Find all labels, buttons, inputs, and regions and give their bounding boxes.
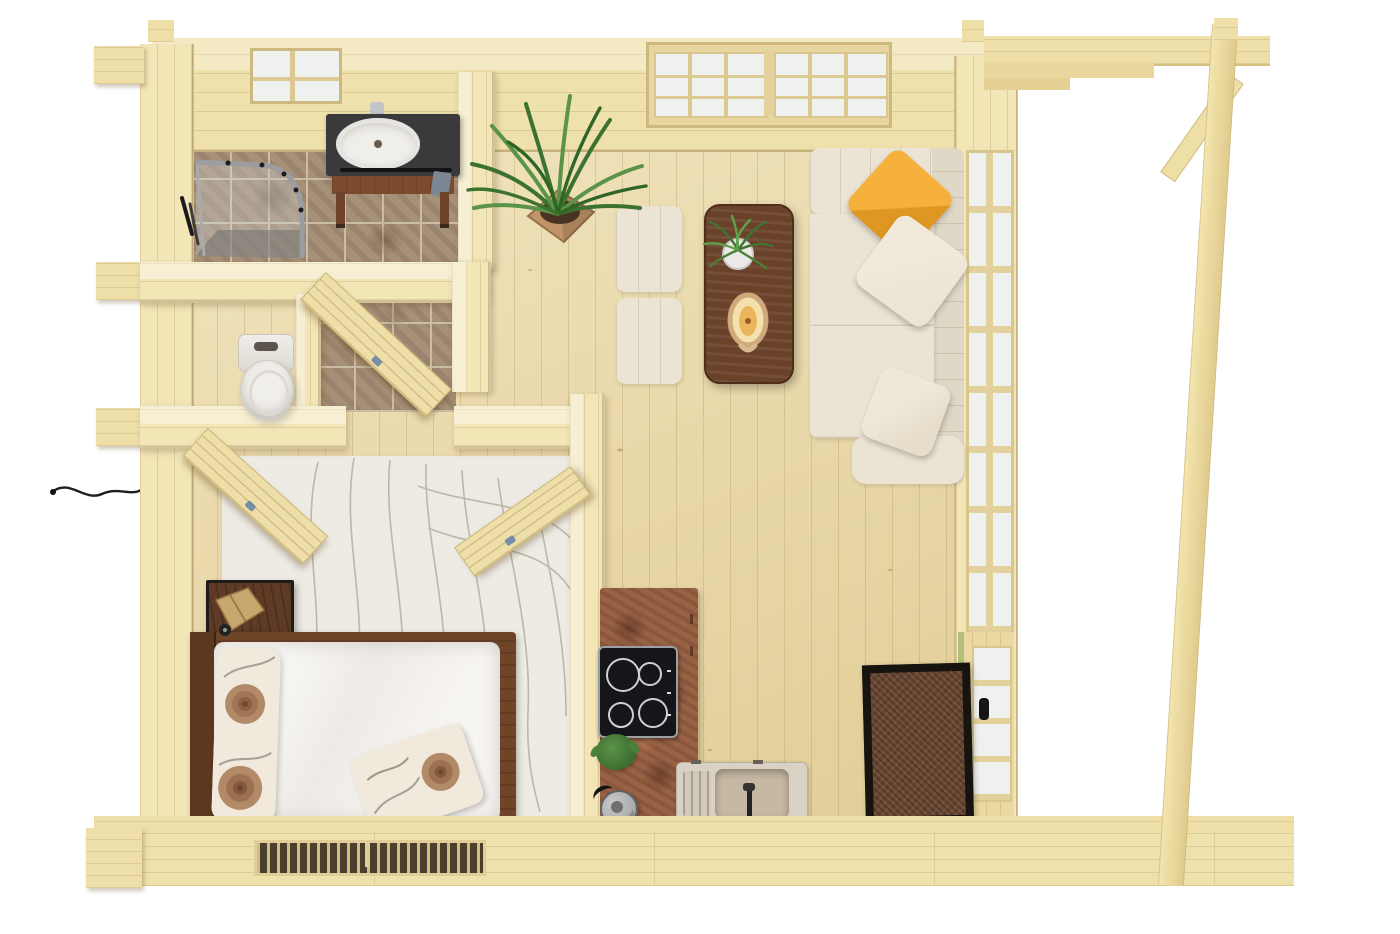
kettle-lid [611, 801, 623, 813]
burner-back-left [608, 702, 634, 728]
counter-handle-2 [690, 646, 693, 656]
hob-control-2 [667, 692, 671, 694]
log-end-mid-upper [96, 262, 142, 300]
toilet [236, 332, 296, 420]
hob-control-3 [667, 714, 671, 716]
log-end-top-left [94, 46, 144, 84]
vanity-leg-right [440, 192, 449, 228]
corner-stub-top-right [962, 20, 984, 42]
bedside-lamp [210, 584, 272, 642]
hob-control-1 [667, 670, 671, 672]
bathroom-door-hinge [371, 355, 383, 367]
hall-door-hinge [504, 535, 516, 546]
counter-handle-1 [690, 614, 693, 624]
burner-back-right [638, 698, 668, 728]
ottoman-cushion-bottom [616, 298, 682, 384]
sink-hinge-right [753, 760, 763, 764]
floral-pillow-head-art [211, 647, 281, 823]
burner-front-left [606, 658, 640, 692]
vanity-leg-left [336, 192, 345, 228]
floor-plan-render [0, 0, 1400, 934]
porch-overhang-1 [984, 62, 1154, 78]
corner-shower [188, 152, 310, 272]
vanity-unit [324, 96, 464, 232]
bedroom-door-hinge [244, 500, 256, 512]
door-handle [979, 698, 989, 720]
glazed-wall-panes [966, 150, 1014, 636]
power-cable [48, 470, 148, 510]
palm-plant [462, 86, 652, 276]
log-end-mid-lower [96, 408, 142, 446]
candle-lantern [726, 292, 770, 356]
burner-front-right [638, 662, 662, 686]
floral-pillow-head [211, 647, 281, 823]
door-panes [972, 646, 1012, 802]
induction-hob [598, 646, 678, 738]
bottom-window-divider [365, 843, 370, 867]
sink-faucet-head [743, 783, 755, 791]
bottom-wall-window [254, 840, 486, 876]
porch-corner-post [1158, 24, 1238, 886]
wall-bedroom-top-right [454, 406, 574, 449]
sink-faucet [747, 787, 752, 819]
living-room-window [646, 42, 892, 128]
window-sash-left [654, 52, 768, 118]
sink-drain [374, 140, 382, 148]
sink-bowl [715, 769, 789, 819]
towel-rail-handle [176, 194, 202, 250]
porch-overhang-2 [984, 78, 1070, 90]
toilet-seat-ring [249, 370, 289, 416]
doormat [862, 663, 974, 826]
window-center-post [764, 50, 774, 116]
wall-door-jamb [452, 262, 491, 392]
log-end-bottom-left [86, 828, 142, 888]
sink-drainboard [683, 771, 711, 817]
porch-post-stub [1214, 18, 1238, 40]
toilet-flush-slot [254, 342, 278, 351]
sink-hinge-left [691, 760, 701, 764]
window-sash-right [774, 52, 888, 118]
herb-plant [596, 734, 636, 770]
corner-stub-top-left [148, 20, 174, 42]
fern-plant [702, 214, 774, 282]
